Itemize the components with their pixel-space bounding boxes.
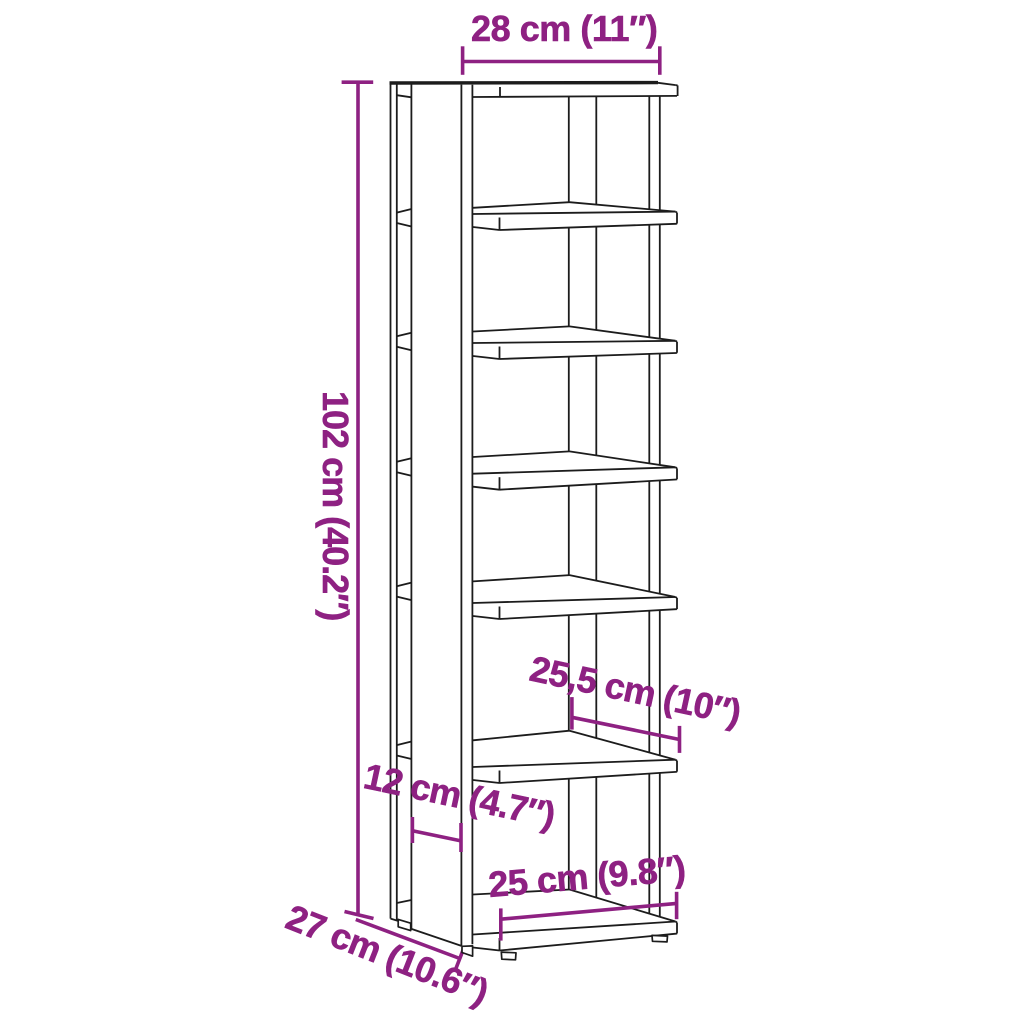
svg-text:28 cm (11″): 28 cm (11″)	[471, 8, 657, 49]
svg-text:102 cm (40.2″): 102 cm (40.2″)	[315, 391, 356, 620]
